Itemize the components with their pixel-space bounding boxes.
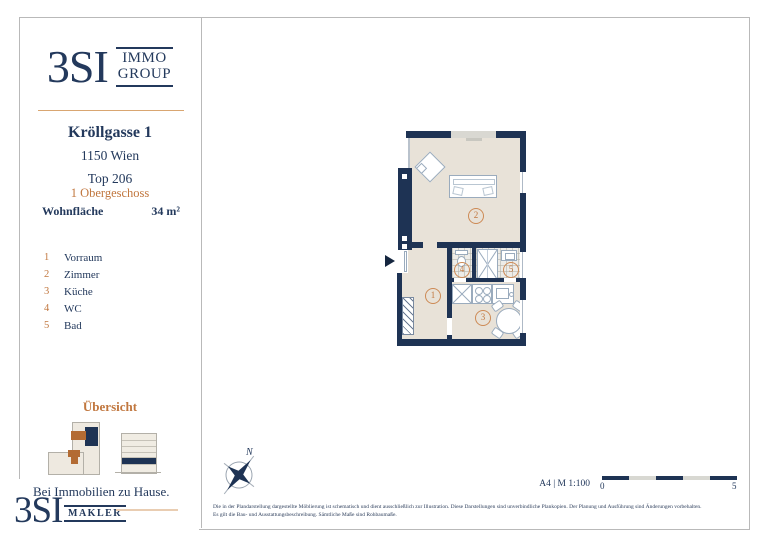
project-unit: Top 206 — [19, 171, 201, 187]
entrance-door — [404, 251, 407, 272]
wall-partition — [412, 242, 423, 248]
scale-segment — [656, 476, 683, 480]
window-top — [451, 131, 496, 138]
brand-logo: 3SI IMMO GROUP — [19, 36, 201, 98]
room-number: 3 — [44, 286, 64, 297]
sofa — [449, 175, 497, 198]
stove — [472, 284, 492, 304]
disclaimer: Die in der Plandarstellung dargestellte … — [213, 504, 748, 519]
sofa-cushion — [482, 186, 493, 196]
project-floor: 1 Obergeschoss — [19, 186, 201, 201]
scale-end-label: 5 — [732, 481, 737, 491]
wall-bad-bottom — [466, 278, 504, 282]
pillar-mark — [402, 244, 407, 249]
room-number: 1 — [44, 252, 64, 263]
area-value: 34 m² — [151, 204, 180, 219]
wall-wc-bottom — [447, 278, 454, 282]
room-number: 5 — [44, 320, 64, 331]
room-legend-row: 5 Bad — [44, 317, 174, 334]
sink-x-glyph — [453, 285, 471, 303]
radiator-hatch — [402, 297, 414, 335]
washbasin — [501, 250, 517, 261]
project-city: 1150 Wien — [19, 148, 201, 164]
overview-ground-line — [115, 472, 161, 473]
sofa-back — [453, 179, 495, 185]
scale-bar — [602, 476, 737, 480]
kitchen-sink-unit — [452, 284, 472, 304]
scale-segment — [710, 476, 737, 480]
brand-logo-subtitle: IMMO GROUP — [116, 47, 173, 87]
sofa-cushion — [452, 186, 463, 196]
burner — [483, 287, 491, 295]
tap — [509, 292, 514, 297]
brand-logo-text: 3SI — [47, 44, 108, 90]
plan-number-wc: 4 — [454, 262, 470, 278]
overview-building-elevation — [121, 433, 157, 474]
disclaimer-line1: Die in der Plandarstellung dargestellte … — [213, 504, 748, 512]
wall-vorraum — [447, 248, 452, 318]
building-floor — [122, 434, 156, 441]
room-name: Küche — [64, 286, 93, 298]
burner — [475, 287, 483, 295]
scale-segment — [629, 476, 656, 480]
burner — [483, 295, 491, 303]
pillar-mark — [402, 174, 407, 179]
window-right — [520, 172, 526, 193]
footer-logo-subtitle: MAKLER — [64, 505, 126, 522]
burner — [475, 295, 483, 303]
room-legend: 1 Vorraum 2 Zimmer 3 Küche 4 WC 5 Bad — [44, 249, 174, 334]
window-right — [520, 300, 526, 333]
entrance-arrow-icon — [385, 255, 395, 267]
room-number: 4 — [44, 303, 64, 314]
window-right — [520, 252, 526, 278]
wall-left-pillar — [398, 168, 412, 250]
footer-accent-line — [116, 509, 178, 511]
overview-unit-highlight — [85, 427, 98, 446]
basin — [496, 288, 509, 299]
washbasin-bowl — [505, 253, 515, 260]
window-left — [408, 138, 410, 168]
window-sill — [466, 138, 482, 141]
overview-circulation-highlight — [71, 431, 86, 440]
footer-logo-text: 3SI — [14, 492, 62, 529]
overview-circulation-highlight — [71, 455, 78, 464]
room-legend-row: 4 WC — [44, 300, 174, 317]
wall-left-lower — [397, 273, 402, 339]
compass-icon — [216, 446, 264, 498]
brand-logo-sub1: IMMO — [122, 51, 167, 67]
room-legend-row: 3 Küche — [44, 283, 174, 300]
plan-number-vorraum: 1 — [425, 288, 441, 304]
sidebar-divider — [201, 17, 202, 528]
format-scale-text: A4 | M 1:100 — [498, 479, 590, 489]
brand-logo-sub2: GROUP — [118, 67, 171, 83]
building-floor-highlight — [122, 458, 156, 465]
room-legend-row: 1 Vorraum — [44, 249, 174, 266]
compass-north-label: N — [246, 447, 253, 458]
plan-number-kueche: 3 — [475, 310, 491, 326]
wall-bottom — [397, 339, 526, 346]
shower-glyph — [478, 250, 497, 279]
room-legend-row: 2 Zimmer — [44, 266, 174, 283]
plan-number-bad: 5 — [503, 262, 519, 278]
room-name: Zimmer — [64, 269, 99, 281]
sidebar-accent-rule — [38, 110, 184, 111]
plan-number-zimmer: 2 — [468, 208, 484, 224]
area-label: Wohnfläche — [42, 204, 103, 219]
scale-segment — [602, 476, 629, 480]
room-number: 2 — [44, 269, 64, 280]
wall-bad-bottom — [516, 278, 520, 282]
overview-title: Übersicht — [19, 399, 201, 415]
shower — [477, 249, 498, 280]
scale-start-label: 0 — [600, 481, 605, 491]
area-row: Wohnfläche 34 m² — [42, 204, 180, 219]
floorplan-sheet: { "brand": { "logo_text": "3SI", "logo_s… — [0, 0, 770, 545]
disclaimer-line2: Es gilt die Bau- und Ausstattungsbeschre… — [213, 512, 748, 520]
floor-plan: 2 1 4 5 3 — [396, 131, 532, 346]
room-name: Bad — [64, 320, 82, 332]
project-street: Kröllgasse 1 — [19, 124, 201, 142]
room-name: WC — [64, 303, 82, 315]
dining-table — [496, 308, 522, 334]
toilet-tank — [455, 250, 468, 255]
pillar-mark — [402, 236, 407, 241]
scale-segment — [683, 476, 710, 480]
wall-wc-bad — [472, 248, 476, 282]
wall-vorraum — [447, 335, 452, 340]
room-name: Vorraum — [64, 252, 102, 264]
